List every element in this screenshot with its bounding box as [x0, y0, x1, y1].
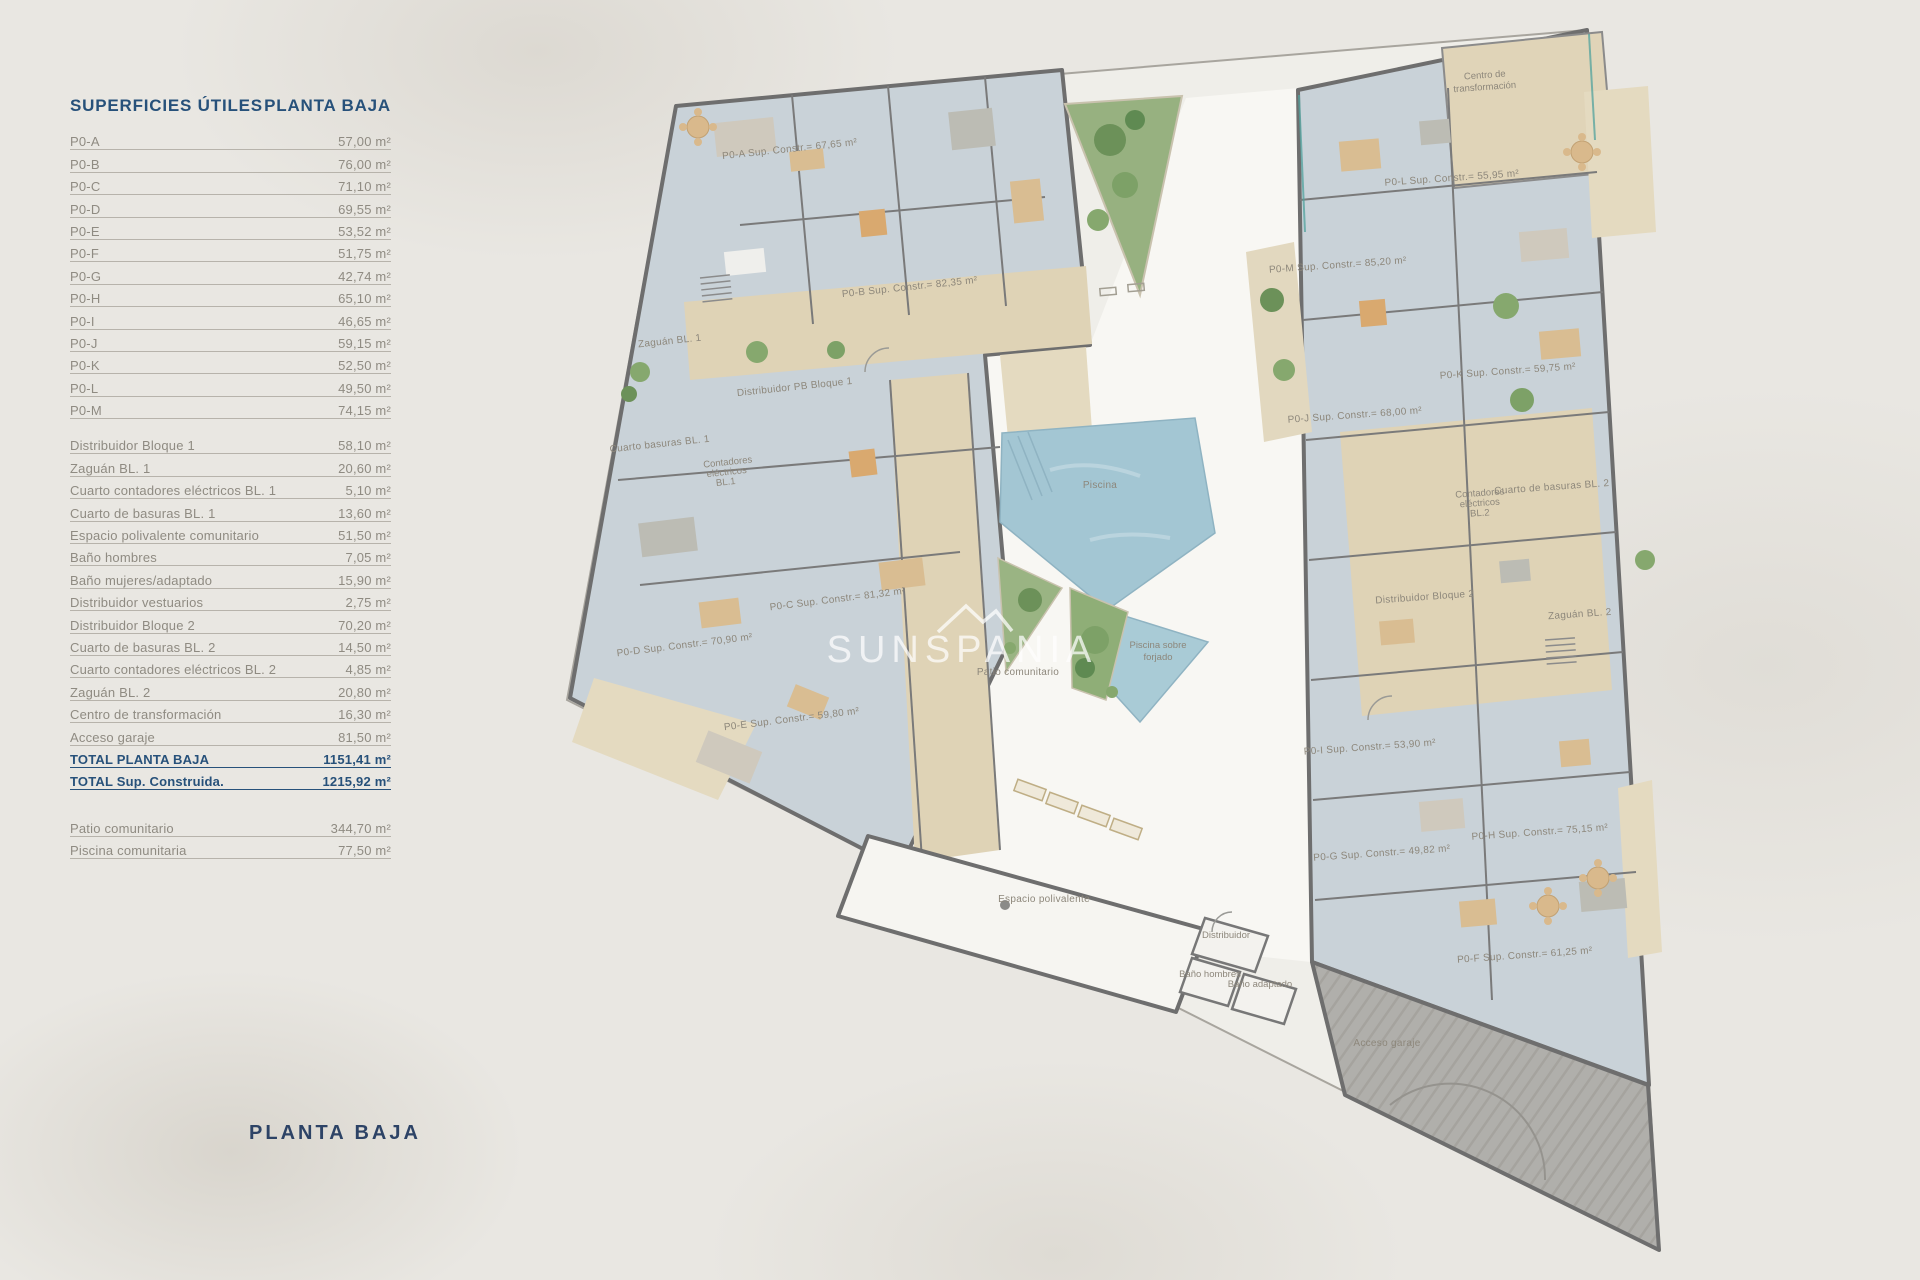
row-value: 51,50 m²: [338, 528, 391, 543]
row-value: 81,50 m²: [338, 730, 391, 745]
row-value: 46,65 m²: [338, 314, 391, 329]
table-group-gap: [70, 419, 391, 432]
row-value: 13,60 m²: [338, 506, 391, 521]
table-row: P0-M74,15 m²: [70, 397, 391, 419]
row-value: 53,52 m²: [338, 224, 391, 239]
table-row-total: TOTAL Sup. Construida.1215,92 m²: [70, 768, 391, 790]
row-label: P0-H: [70, 291, 100, 306]
row-label: Baño hombres: [70, 550, 157, 565]
table-row: Distribuidor vestuarios2,75 m²: [70, 589, 391, 611]
table-row: Patio comunitario344,70 m²: [70, 814, 391, 836]
row-value: 2,75 m²: [346, 595, 391, 610]
row-value: 1151,41 m²: [323, 752, 391, 767]
row-label: P0-A: [70, 134, 100, 149]
table-row: Cuarto de basuras BL. 113,60 m²: [70, 499, 391, 521]
surfaces-table: SUPERFICIES ÚTILES PLANTA BAJA P0-A57,00…: [70, 96, 391, 859]
row-label: Zaguán BL. 1: [70, 461, 150, 476]
room-label-contadores2-l3: BL.2: [1470, 507, 1490, 519]
table-row: P0-C71,10 m²: [70, 173, 391, 195]
row-label: P0-B: [70, 157, 100, 172]
table-group-gap: [70, 790, 391, 814]
row-value: 77,50 m²: [338, 843, 391, 858]
row-label: Piscina comunitaria: [70, 843, 187, 858]
room-label-piscina-forjado-l1: Piscina sobre: [1129, 640, 1186, 651]
room-label-contadores1-l3: BL.1: [715, 476, 736, 489]
row-label: Cuarto de basuras BL. 1: [70, 506, 216, 521]
row-value: 5,10 m²: [346, 483, 391, 498]
table-header: SUPERFICIES ÚTILES PLANTA BAJA: [70, 96, 391, 116]
table-row: Acceso garaje81,50 m²: [70, 723, 391, 745]
table-subtitle: PLANTA BAJA: [264, 96, 391, 116]
row-value: 76,00 m²: [338, 157, 391, 172]
table-row: Espacio polivalente comunitario51,50 m²: [70, 522, 391, 544]
table-row: P0-E53,52 m²: [70, 218, 391, 240]
room-label-patio: Patio comunitario: [977, 667, 1059, 678]
row-value: 74,15 m²: [338, 403, 391, 418]
row-value: 20,80 m²: [338, 685, 391, 700]
row-label: Centro de transformación: [70, 707, 221, 722]
row-label: P0-I: [70, 314, 95, 329]
table-row: Cuarto contadores eléctricos BL. 15,10 m…: [70, 477, 391, 499]
table-row: Zaguán BL. 220,80 m²: [70, 678, 391, 700]
table-row: P0-B76,00 m²: [70, 150, 391, 172]
page-title: PLANTA BAJA: [205, 1122, 465, 1145]
row-value: 51,75 m²: [338, 246, 391, 261]
row-label: Zaguán BL. 2: [70, 685, 150, 700]
row-value: 58,10 m²: [338, 438, 391, 453]
table-row: P0-L49,50 m²: [70, 374, 391, 396]
row-value: 16,30 m²: [338, 707, 391, 722]
row-label: Acceso garaje: [70, 730, 155, 745]
table-row: P0-F51,75 m²: [70, 240, 391, 262]
room-label-distribuidor: Distribuidor: [1202, 930, 1250, 941]
table-row: Baño mujeres/adaptado15,90 m²: [70, 566, 391, 588]
row-label: P0-J: [70, 336, 98, 351]
table-row: P0-D69,55 m²: [70, 195, 391, 217]
row-value: 4,85 m²: [346, 662, 391, 677]
table-row: P0-H65,10 m²: [70, 285, 391, 307]
row-label: TOTAL PLANTA BAJA: [70, 752, 209, 767]
row-value: 57,00 m²: [338, 134, 391, 149]
table-row: P0-I46,65 m²: [70, 307, 391, 329]
table-row: P0-J59,15 m²: [70, 330, 391, 352]
room-label-garaje: Acceso garaje: [1353, 1038, 1420, 1049]
row-label: Distribuidor Bloque 1: [70, 438, 195, 453]
row-label: Distribuidor Bloque 2: [70, 618, 195, 633]
table-row: P0-G42,74 m²: [70, 262, 391, 284]
row-label: Cuarto de basuras BL. 2: [70, 640, 216, 655]
row-label: P0-K: [70, 358, 100, 373]
room-label-piscina-forjado-l2: forjado: [1143, 652, 1172, 663]
table-row-total: TOTAL PLANTA BAJA1151,41 m²: [70, 746, 391, 768]
table-row: Cuarto de basuras BL. 214,50 m²: [70, 634, 391, 656]
table-row: Distribuidor Bloque 270,20 m²: [70, 611, 391, 633]
row-label: P0-F: [70, 246, 99, 261]
block-2: [1298, 30, 1662, 1085]
table-row: P0-K52,50 m²: [70, 352, 391, 374]
row-label: P0-M: [70, 403, 102, 418]
table-row: Zaguán BL. 120,60 m²: [70, 454, 391, 476]
row-value: 344,70 m²: [331, 821, 391, 836]
table-title: SUPERFICIES ÚTILES: [70, 96, 263, 116]
row-value: 70,20 m²: [338, 618, 391, 633]
table-row: P0-A57,00 m²: [70, 128, 391, 150]
room-label-espacio: Espacio polivalente: [998, 894, 1090, 905]
row-value: 7,05 m²: [346, 550, 391, 565]
row-label: P0-G: [70, 269, 101, 284]
row-value: 49,50 m²: [338, 381, 391, 396]
row-label: P0-E: [70, 224, 100, 239]
room-label-bano-adaptado: Baño adaptado: [1228, 979, 1292, 990]
brochure-page: SUNSPANIA P0-A Sup. Constr.= 67,65 m² P0…: [0, 0, 1920, 1280]
row-label: Cuarto contadores eléctricos BL. 1: [70, 483, 276, 498]
row-value: 69,55 m²: [338, 202, 391, 217]
row-label: Baño mujeres/adaptado: [70, 573, 212, 588]
table-row: Centro de transformación16,30 m²: [70, 701, 391, 723]
room-label-piscina: Piscina: [1083, 480, 1117, 491]
row-label: P0-C: [70, 179, 100, 194]
row-label: P0-L: [70, 381, 98, 396]
row-value: 52,50 m²: [338, 358, 391, 373]
row-value: 42,74 m²: [338, 269, 391, 284]
row-label: Distribuidor vestuarios: [70, 595, 203, 610]
row-label: Patio comunitario: [70, 821, 174, 836]
table-row: Baño hombres7,05 m²: [70, 544, 391, 566]
table-row: Cuarto contadores eléctricos BL. 24,85 m…: [70, 656, 391, 678]
row-value: 20,60 m²: [338, 461, 391, 476]
row-label: TOTAL Sup. Construida.: [70, 774, 224, 789]
row-label: P0-D: [70, 202, 100, 217]
watermark-text: SUNSPANIA: [827, 629, 1098, 671]
row-value: 65,10 m²: [338, 291, 391, 306]
row-value: 15,90 m²: [338, 573, 391, 588]
row-value: 59,15 m²: [338, 336, 391, 351]
row-value: 1215,92 m²: [323, 774, 392, 789]
row-value: 14,50 m²: [338, 640, 391, 655]
table-row: Distribuidor Bloque 158,10 m²: [70, 432, 391, 454]
row-value: 71,10 m²: [338, 179, 391, 194]
row-label: Cuarto contadores eléctricos BL. 2: [70, 662, 276, 677]
table-row: Piscina comunitaria77,50 m²: [70, 837, 391, 859]
row-label: Espacio polivalente comunitario: [70, 528, 259, 543]
